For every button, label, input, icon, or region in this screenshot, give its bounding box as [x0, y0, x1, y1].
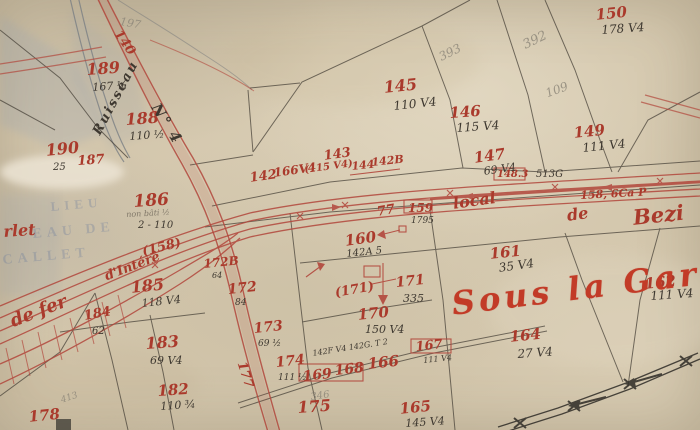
road-top-right — [645, 95, 700, 110]
marker-171-flag — [364, 266, 380, 277]
erasure-smudge — [0, 155, 124, 189]
cadastral-map: 189167 ½188110 ½19025187186non bâti ½2 -… — [0, 0, 700, 430]
paper-washes — [0, 8, 700, 425]
mark-square — [399, 226, 406, 232]
arrow-down — [378, 295, 388, 305]
ink-blot — [56, 419, 71, 430]
map-drawing — [0, 0, 700, 430]
underline-144 — [350, 169, 400, 175]
arrow-left — [377, 230, 386, 239]
arrow-up-right — [317, 262, 325, 271]
